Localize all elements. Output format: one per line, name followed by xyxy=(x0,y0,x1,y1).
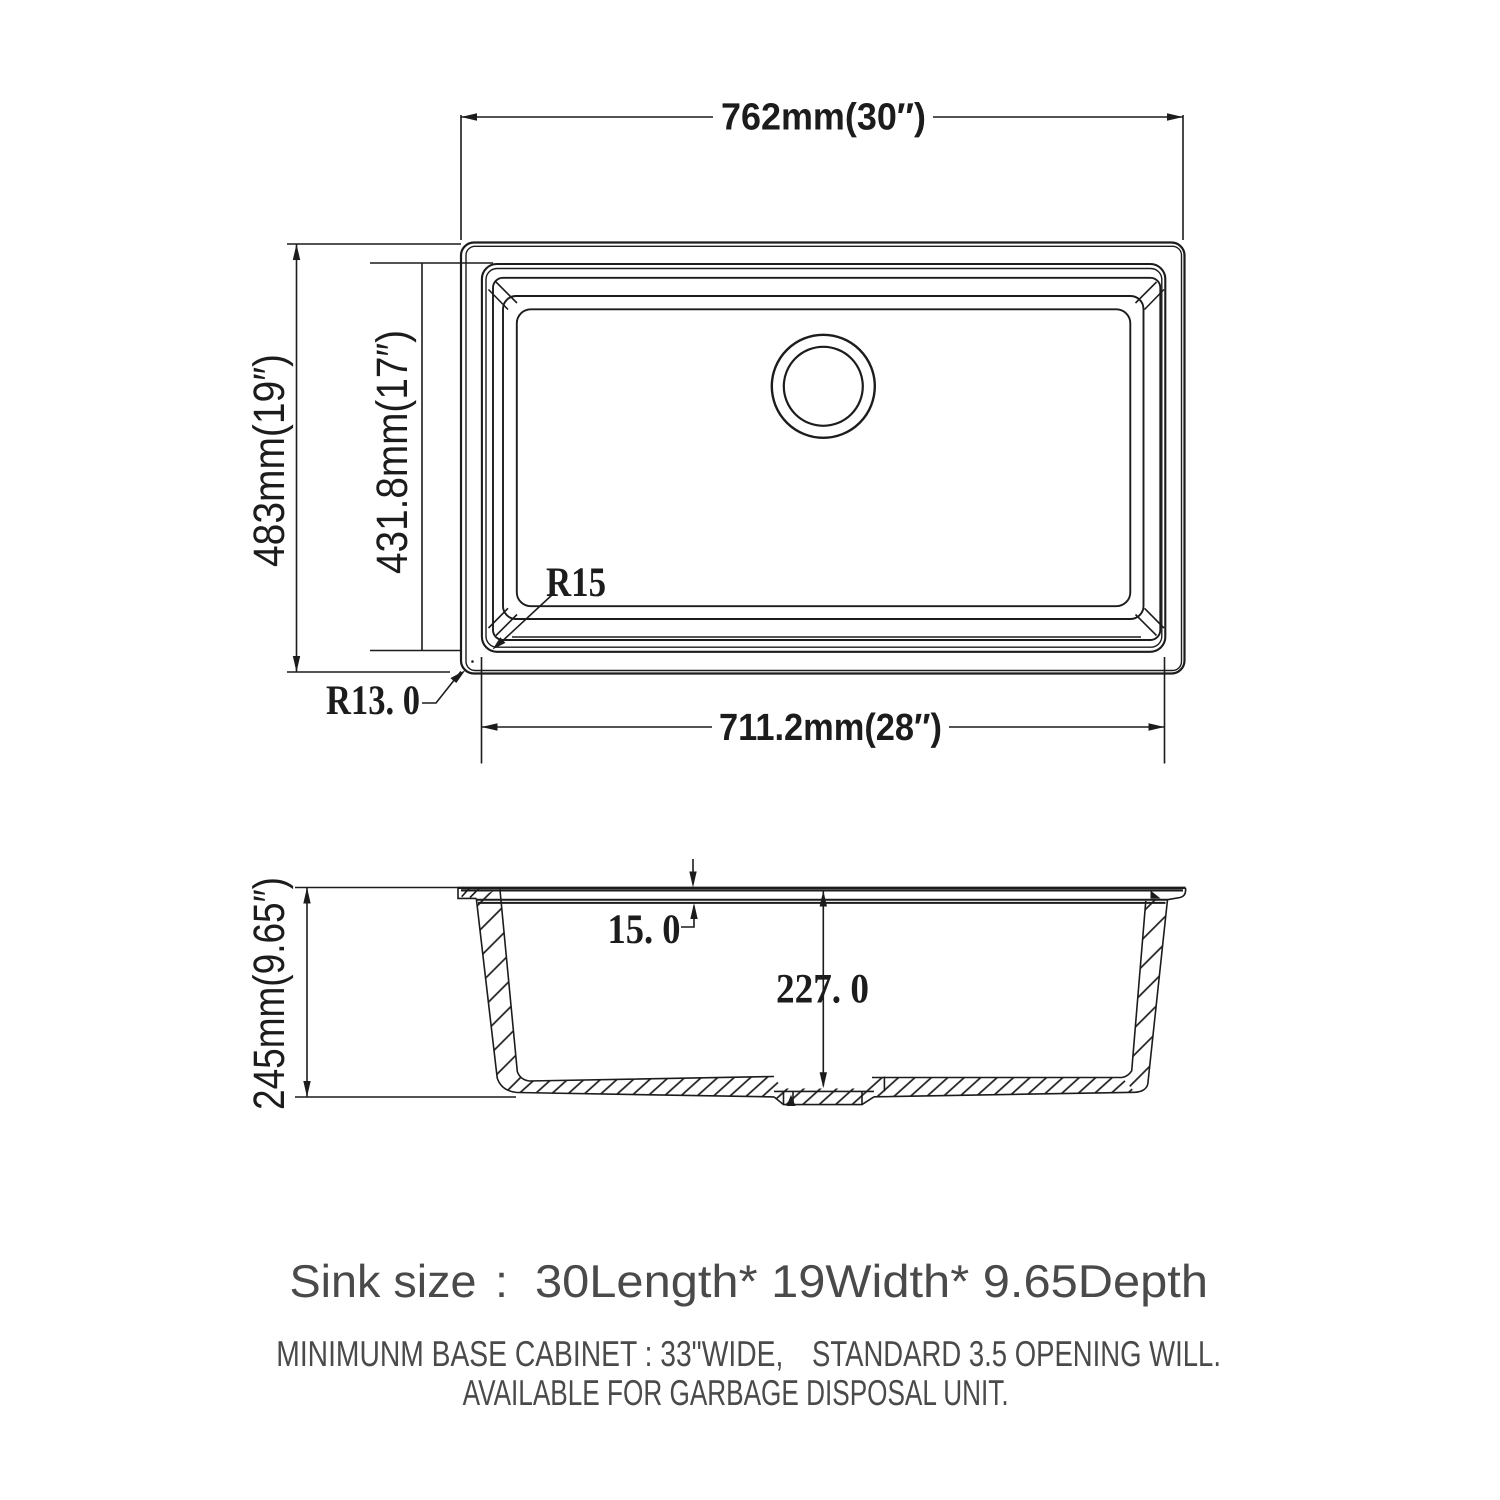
svg-text:R13. 0: R13. 0 xyxy=(326,678,420,724)
svg-text:MINIMUNM BASE CABINET : 33"WID: MINIMUNM BASE CABINET : 33"WIDE, xyxy=(276,1333,783,1374)
svg-text:245mm(9.65″): 245mm(9.65″) xyxy=(245,877,294,1110)
svg-text:R15: R15 xyxy=(546,560,606,606)
svg-text::: : xyxy=(495,1255,508,1307)
svg-text:227. 0: 227. 0 xyxy=(776,967,869,1013)
svg-text:15. 0: 15. 0 xyxy=(608,907,681,953)
svg-text:431.8mm(17″): 431.8mm(17″) xyxy=(368,330,417,574)
svg-text:762mm(30″): 762mm(30″) xyxy=(721,97,926,139)
svg-text:30Length* 19Width* 9.65Depth: 30Length* 19Width* 9.65Depth xyxy=(535,1255,1208,1307)
svg-text:483mm(19″): 483mm(19″) xyxy=(245,354,294,567)
svg-text:Sink size: Sink size xyxy=(290,1255,477,1307)
svg-text:STANDARD 3.5 OPENING WILL.: STANDARD 3.5 OPENING WILL. xyxy=(812,1333,1221,1374)
svg-text:711.2mm(28″): 711.2mm(28″) xyxy=(719,707,942,749)
svg-text:AVAILABLE FOR GARBAGE DISPOSAL: AVAILABLE FOR GARBAGE DISPOSAL UNIT. xyxy=(463,1372,1009,1413)
